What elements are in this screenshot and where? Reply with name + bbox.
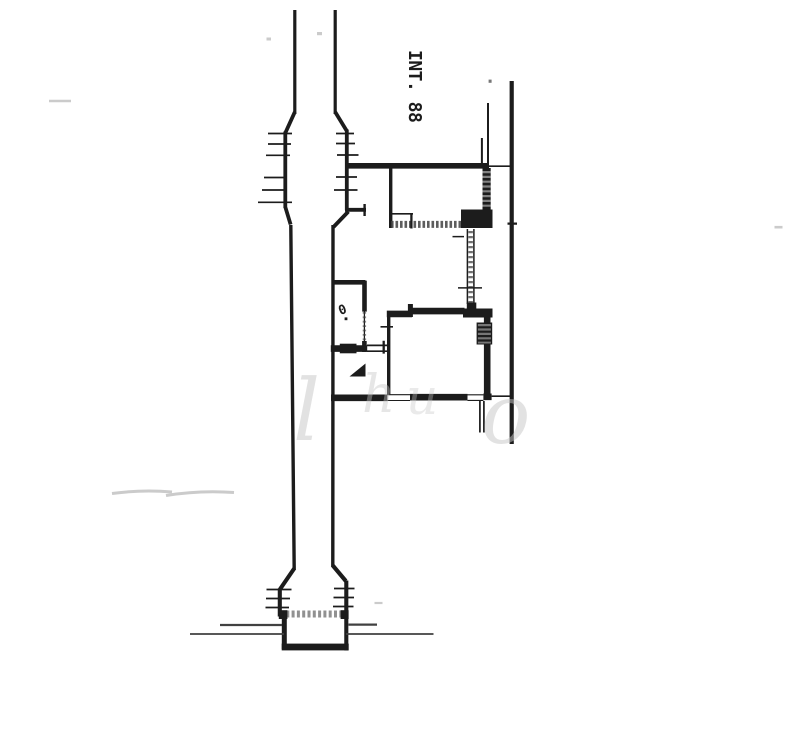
small-room-solid-block <box>340 344 357 354</box>
watermark-glyph-1: l <box>293 362 320 461</box>
floor-plan-drawing: INT. 88 0 l h u o <box>0 0 800 752</box>
artifact-smudge-left <box>112 491 234 495</box>
entrance-landing-block <box>190 610 434 650</box>
artifact-speck-1 <box>267 38 272 41</box>
small-room-walls <box>333 281 365 352</box>
shaft-flare-walls <box>285 112 348 227</box>
wall-jog-vertical <box>467 303 477 316</box>
stairwell-shaft <box>258 10 366 651</box>
room-mark-dot <box>345 317 348 320</box>
upper-wall-stubs <box>482 103 488 164</box>
landing-bottom-wall <box>282 644 349 651</box>
watermark: l h u o <box>293 362 530 463</box>
shaft-bottom-flare <box>280 566 347 651</box>
small-room-zero-mark: 0 <box>337 302 350 319</box>
landing-corner-right <box>341 610 349 619</box>
watermark-glyph-2: h <box>362 365 396 425</box>
watermark-glyph-4: o <box>481 368 530 463</box>
interior-walls-medium <box>389 168 391 395</box>
shaft-upper-walls <box>295 10 335 114</box>
scanned-floor-plan: INT. 88 0 l h u o <box>0 0 800 752</box>
artifact-speck-2 <box>317 32 322 35</box>
wall-stub-ticks <box>384 214 517 354</box>
partition-corner-solid <box>461 210 493 229</box>
labels: INT. 88 0 <box>337 50 425 319</box>
unit-number-label: INT. 88 <box>404 50 425 122</box>
watermark-glyph-3: u <box>406 368 438 426</box>
artifact-speck-3 <box>489 80 492 83</box>
